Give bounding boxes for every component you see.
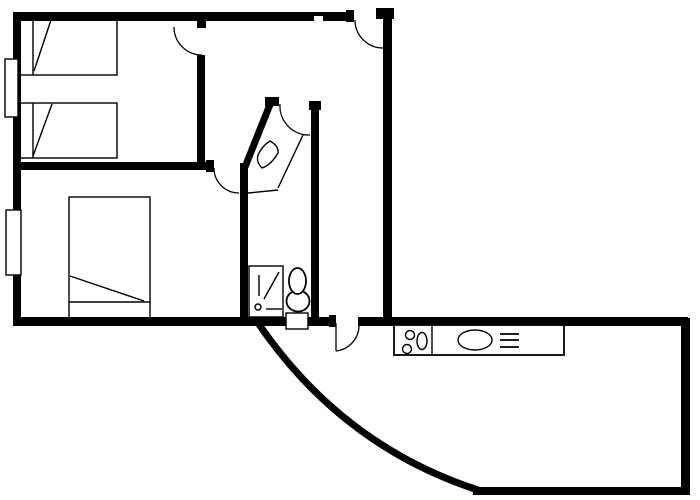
floor-plan-canvas <box>0 0 700 500</box>
bathroom <box>249 266 310 317</box>
middle-wall <box>13 162 213 170</box>
top-wall-end-cap <box>346 10 354 22</box>
window-bedroom-1 <box>5 59 18 117</box>
bathroom-right-wall <box>311 103 319 325</box>
diagonal-wall-cap <box>265 97 279 106</box>
closet-ornament <box>258 141 279 168</box>
bathroom-left-wall <box>240 163 248 325</box>
closet-bottom-line <box>248 190 278 193</box>
top-wall <box>13 12 353 21</box>
shower-head-symbol <box>255 304 261 310</box>
top-wall-notch <box>314 16 323 22</box>
closet-side-line <box>278 135 303 188</box>
door-arc-hallway-top <box>355 20 383 48</box>
bottom-wall-door-cap <box>329 315 336 327</box>
living-room-right-wall <box>681 318 690 495</box>
middle-wall-end-cap <box>206 160 214 172</box>
double-bed <box>69 197 150 318</box>
bedroom-1 <box>20 19 117 158</box>
twin-bed-upper-fold-line <box>34 20 51 71</box>
twin-bed-upper <box>20 19 117 75</box>
toilet-tank <box>289 268 306 294</box>
kitchen-counter <box>394 325 564 355</box>
door-arc-living-room <box>336 324 359 351</box>
kitchen <box>394 325 564 355</box>
shower-spray-line-2 <box>264 272 279 299</box>
floor-plan-drawing <box>0 0 700 500</box>
bedroom1-partition-wall <box>197 55 205 170</box>
entry-corridor-wall <box>383 8 392 325</box>
double-bed-fold-line <box>70 276 144 301</box>
entry-corridor-wall-cap <box>376 8 394 19</box>
bedroom-2 <box>69 197 150 318</box>
door-arc-bedroom-1 <box>174 27 202 55</box>
door-arc-bathroom <box>280 104 310 135</box>
twin-bed-lower-fold-line <box>33 104 52 156</box>
walls <box>13 8 690 495</box>
bathroom-threshold <box>286 313 308 329</box>
door-arc-bedroom-2 <box>214 168 239 193</box>
window-bedroom-2 <box>6 210 21 275</box>
bedroom1-wall-stub <box>197 12 206 28</box>
bathroom-right-wall-cap <box>309 101 321 110</box>
living-room-bottom-wall <box>473 487 690 495</box>
